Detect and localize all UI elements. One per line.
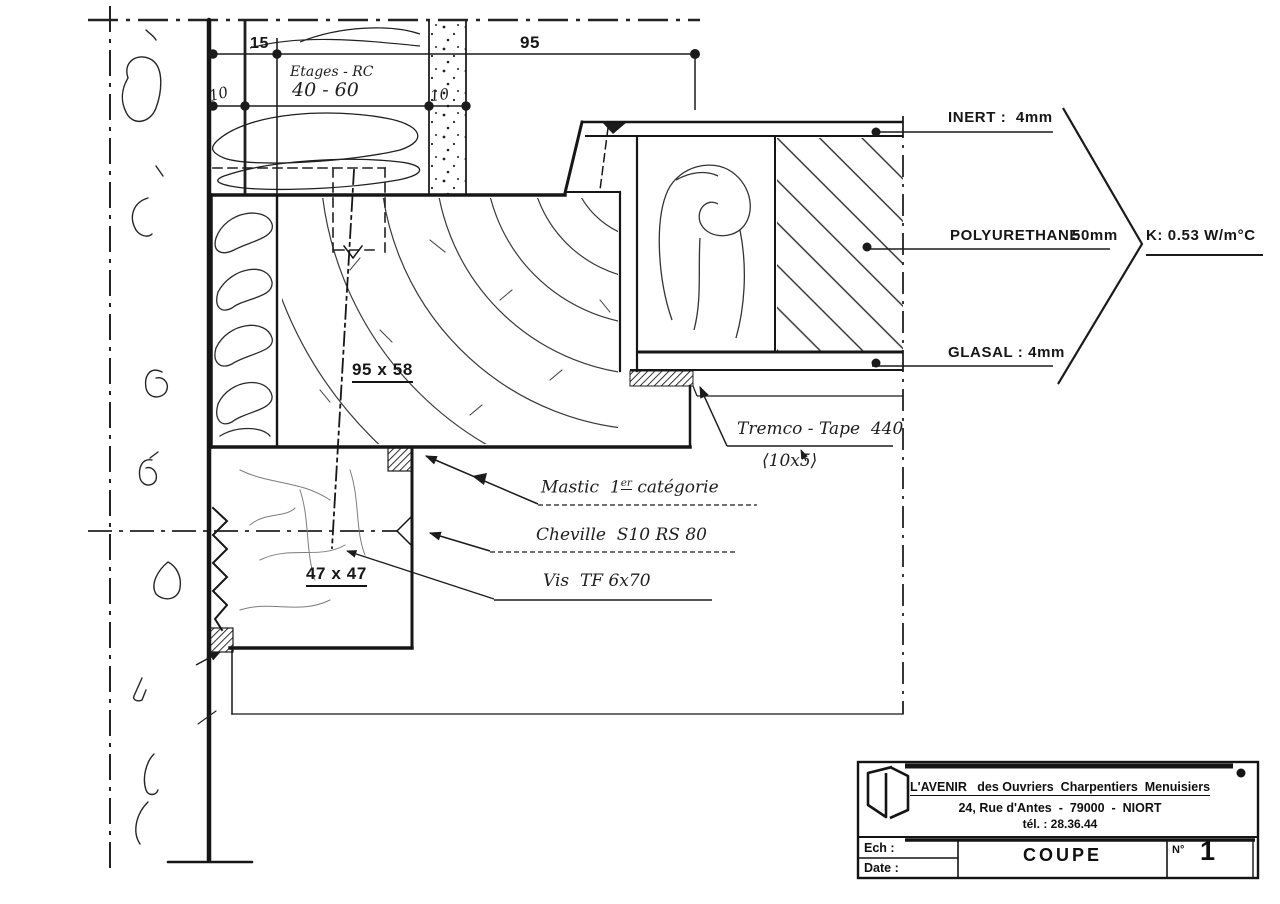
- drawing-number: 1: [1200, 836, 1215, 867]
- floors-range: 40 - 60: [292, 79, 359, 101]
- label-k-value: K: 0.53 W/m°C: [1146, 227, 1256, 244]
- floors-note: Etages - RC: [290, 64, 374, 80]
- label-polyurethane-size: 50mm: [1072, 227, 1118, 244]
- drawing-sheet: 15 95 10 10 Etages - RC 40 - 60 95 x 58 …: [0, 0, 1280, 904]
- dim-95: 95: [520, 33, 540, 53]
- label-glasal: GLASAL : 4mm: [948, 344, 1065, 361]
- panel-section: [582, 122, 903, 396]
- leader-arrow-vis: [347, 551, 494, 599]
- concrete-wall: [122, 20, 252, 862]
- label-tremco: Tremco - Tape 440: [737, 419, 903, 439]
- screw-sketch: [659, 165, 750, 338]
- label-inert: INERT : 4mm: [948, 109, 1053, 126]
- company-phone: tél. : 28.36.44: [888, 817, 1232, 831]
- label-polyurethane: POLYURETHANE: [950, 227, 1080, 244]
- label-mastic: Mastic 1er catégorie: [541, 477, 719, 498]
- leader-arrow-cheville: [430, 533, 490, 551]
- drawing-title: COUPE: [958, 845, 1167, 866]
- label-cheville: Cheville S10 RS 80: [536, 525, 707, 545]
- company-name: L'AVENIR des Ouvriers Charpentiers Menui…: [888, 780, 1232, 794]
- batten-dimension: 47 x 47: [306, 564, 367, 587]
- date-label: Date :: [864, 861, 899, 875]
- company-address: 24, Rue d'Antes - 79000 - NIORT: [888, 801, 1232, 815]
- sash-dimension: 95 x 58: [352, 360, 413, 383]
- dim-10-right: 10: [429, 85, 450, 105]
- label-tape-size: ⟨10x5⟩: [762, 451, 817, 471]
- section-drawing: [0, 0, 1280, 904]
- bracket-chevron: [1058, 108, 1142, 384]
- label-vis: Vis TF 6x70: [543, 571, 651, 591]
- scale-label: Ech :: [864, 841, 895, 855]
- drawing-number-label: N°: [1172, 844, 1184, 856]
- dim-15: 15: [250, 35, 269, 53]
